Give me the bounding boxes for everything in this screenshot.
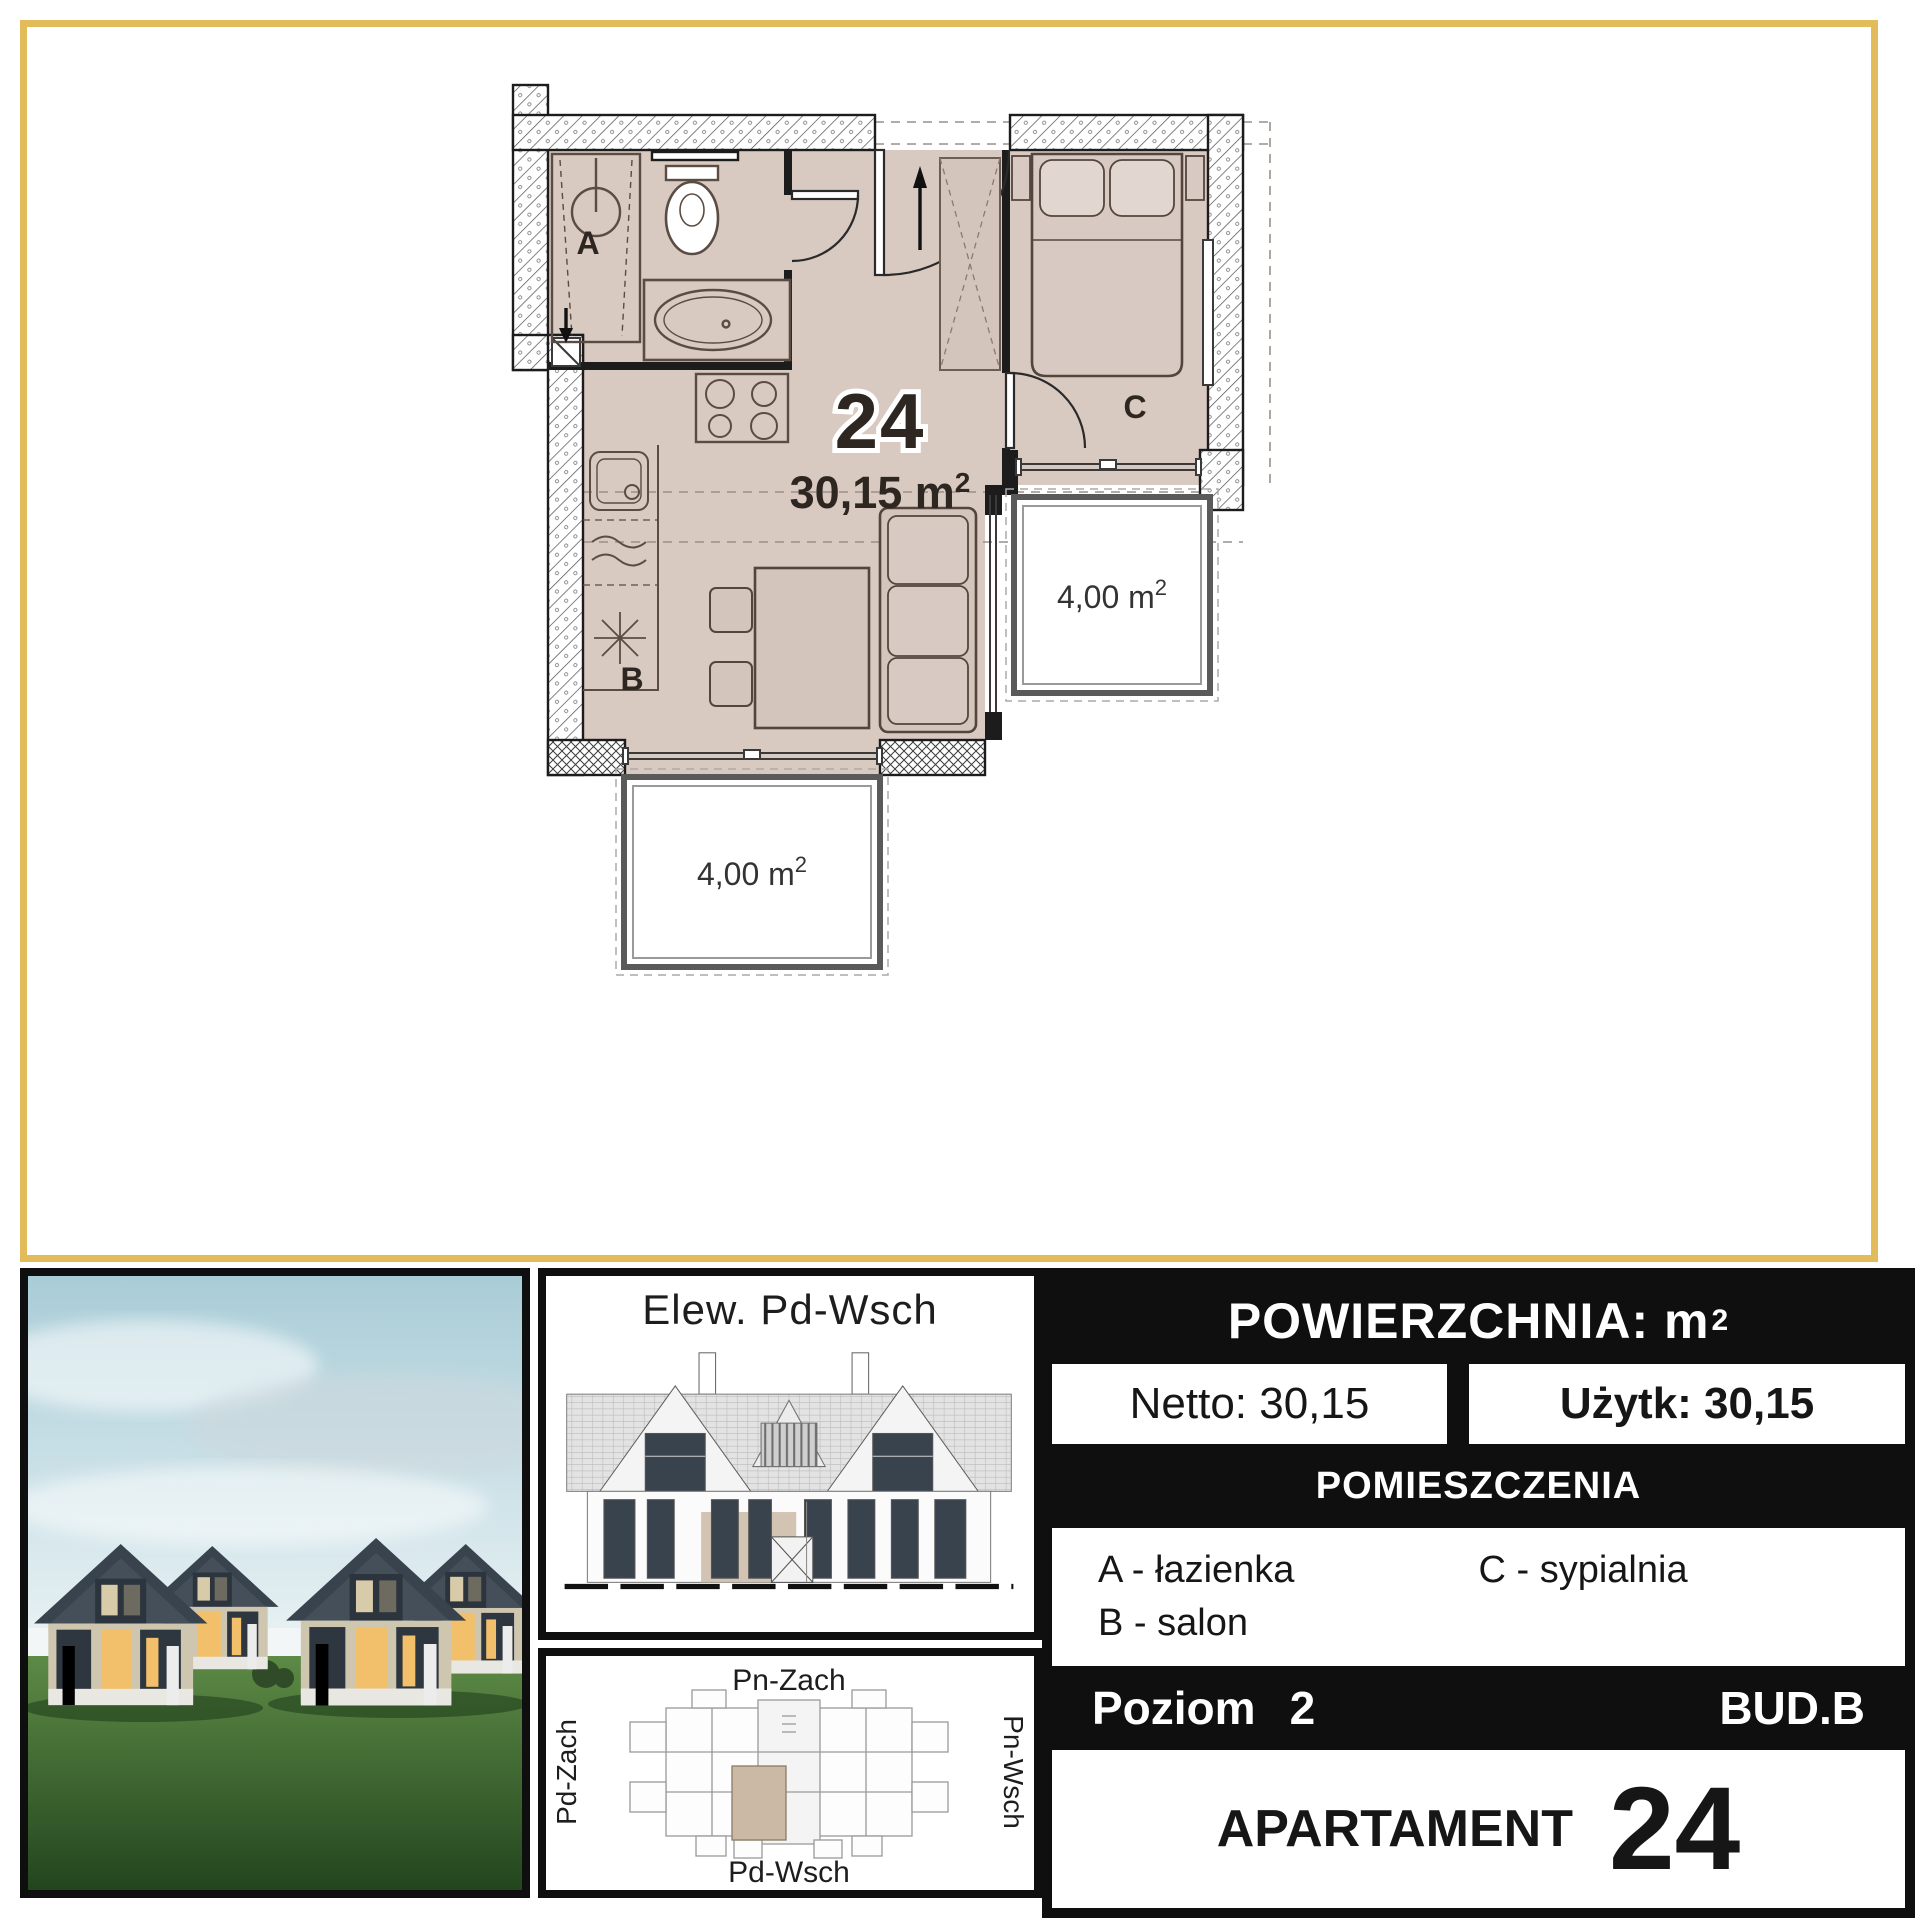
site-label-bottom: Pd-Wsch <box>728 1856 850 1888</box>
level: Poziom 2 <box>1092 1681 1315 1735</box>
building-label: BUD.B <box>1719 1681 1865 1735</box>
pillow <box>1110 160 1174 216</box>
apartment-label: APARTAMENT <box>1217 1799 1573 1859</box>
info-header: POWIERZCHNIA: m2 <box>1052 1278 1905 1364</box>
site-plan-drawing: Pn-Zach Pd-Wsch Pd-Zach Pn-Wsch <box>546 1656 1032 1888</box>
site-label-right: Pn-Wsch <box>998 1715 1029 1829</box>
level-label: Poziom <box>1092 1681 1256 1735</box>
bathroom-door-leaf <box>792 191 858 199</box>
site-floorplate <box>630 1690 948 1858</box>
render-photo <box>28 1276 522 1890</box>
toilet-shelf <box>652 152 738 160</box>
render-photo-panel <box>20 1268 530 1898</box>
sink-counter <box>644 280 790 360</box>
svg-text:4,00 m2: 4,00 m2 <box>1057 575 1167 615</box>
pillow <box>1040 160 1104 216</box>
elevation-title: Elew. Pd-Wsch <box>546 1276 1034 1334</box>
legend-item-c: C - sypialnia <box>1479 1549 1860 1592</box>
bedroom-window <box>1203 240 1213 385</box>
uzytk-value: Użytk: 30,15 <box>1469 1364 1905 1444</box>
balcony-right: 4,00 m2 <box>1006 489 1218 701</box>
apartment-row: APARTAMENT 24 <box>1052 1750 1905 1908</box>
level-row: Poziom 2 BUD.B <box>1052 1666 1905 1750</box>
legend-item-b: B - salon <box>1098 1602 1479 1645</box>
info-panel: POWIERZCHNIA: m2 Netto: 30,15 Użytk: 30,… <box>1042 1268 1915 1918</box>
elevation-panel: Elew. Pd-Wsch <box>538 1268 1042 1640</box>
balcony-bottom: 4,00 m2 <box>616 769 888 975</box>
floor-plan-drawing: 4,00 m2 4,00 m2 24 30,15 m2 A B C <box>400 40 1280 1040</box>
bedroom-door-leaf <box>1006 373 1014 448</box>
nightstand <box>1186 156 1204 200</box>
netto-value: Netto: 30,15 <box>1052 1364 1447 1444</box>
apartment-card-page: { "colors": { "frame_gold": "#e2bc5a", "… <box>0 0 1920 1920</box>
rooms-header: POMIESZCZENIA <box>1052 1444 1905 1528</box>
toilet-bowl <box>666 182 718 254</box>
apartment-number: 24 <box>1609 1770 1740 1888</box>
site-label-top: Pn-Zach <box>732 1664 845 1697</box>
info-header-sup: 2 <box>1711 1304 1729 1338</box>
site-unit-highlight <box>732 1766 786 1840</box>
room-c-label: C <box>1123 389 1146 425</box>
room-a-label: A <box>576 225 599 261</box>
level-value: 2 <box>1290 1681 1316 1735</box>
info-header-text: POWIERZCHNIA: m <box>1228 1292 1710 1350</box>
apartment-number-label: 24 <box>835 377 926 465</box>
entrance-door-leaf <box>875 150 884 275</box>
site-plan-panel: Pn-Zach Pd-Wsch Pd-Zach Pn-Wsch <box>538 1648 1042 1898</box>
elevation-drawing <box>546 1334 1032 1626</box>
chair <box>710 588 752 632</box>
svg-text:4,00 m2: 4,00 m2 <box>697 852 807 892</box>
dining-table <box>755 568 869 728</box>
rooms-legend: A - łazienka C - sypialnia B - salon <box>1052 1528 1905 1666</box>
toilet-tank <box>666 166 718 180</box>
nightstand <box>1012 156 1030 200</box>
area-label: 30,15 m2 <box>790 467 971 518</box>
bedroom-furniture <box>1012 154 1204 376</box>
floor-plan: 4,00 m2 4,00 m2 24 30,15 m2 A B C <box>400 40 1280 1040</box>
room-b-label: B <box>620 661 643 697</box>
legend-item-a: A - łazienka <box>1098 1549 1479 1592</box>
chair <box>710 662 752 706</box>
site-label-left: Pd-Zach <box>551 1719 582 1825</box>
info-values-row: Netto: 30,15 Użytk: 30,15 <box>1052 1364 1905 1444</box>
values-divider <box>1447 1364 1469 1444</box>
